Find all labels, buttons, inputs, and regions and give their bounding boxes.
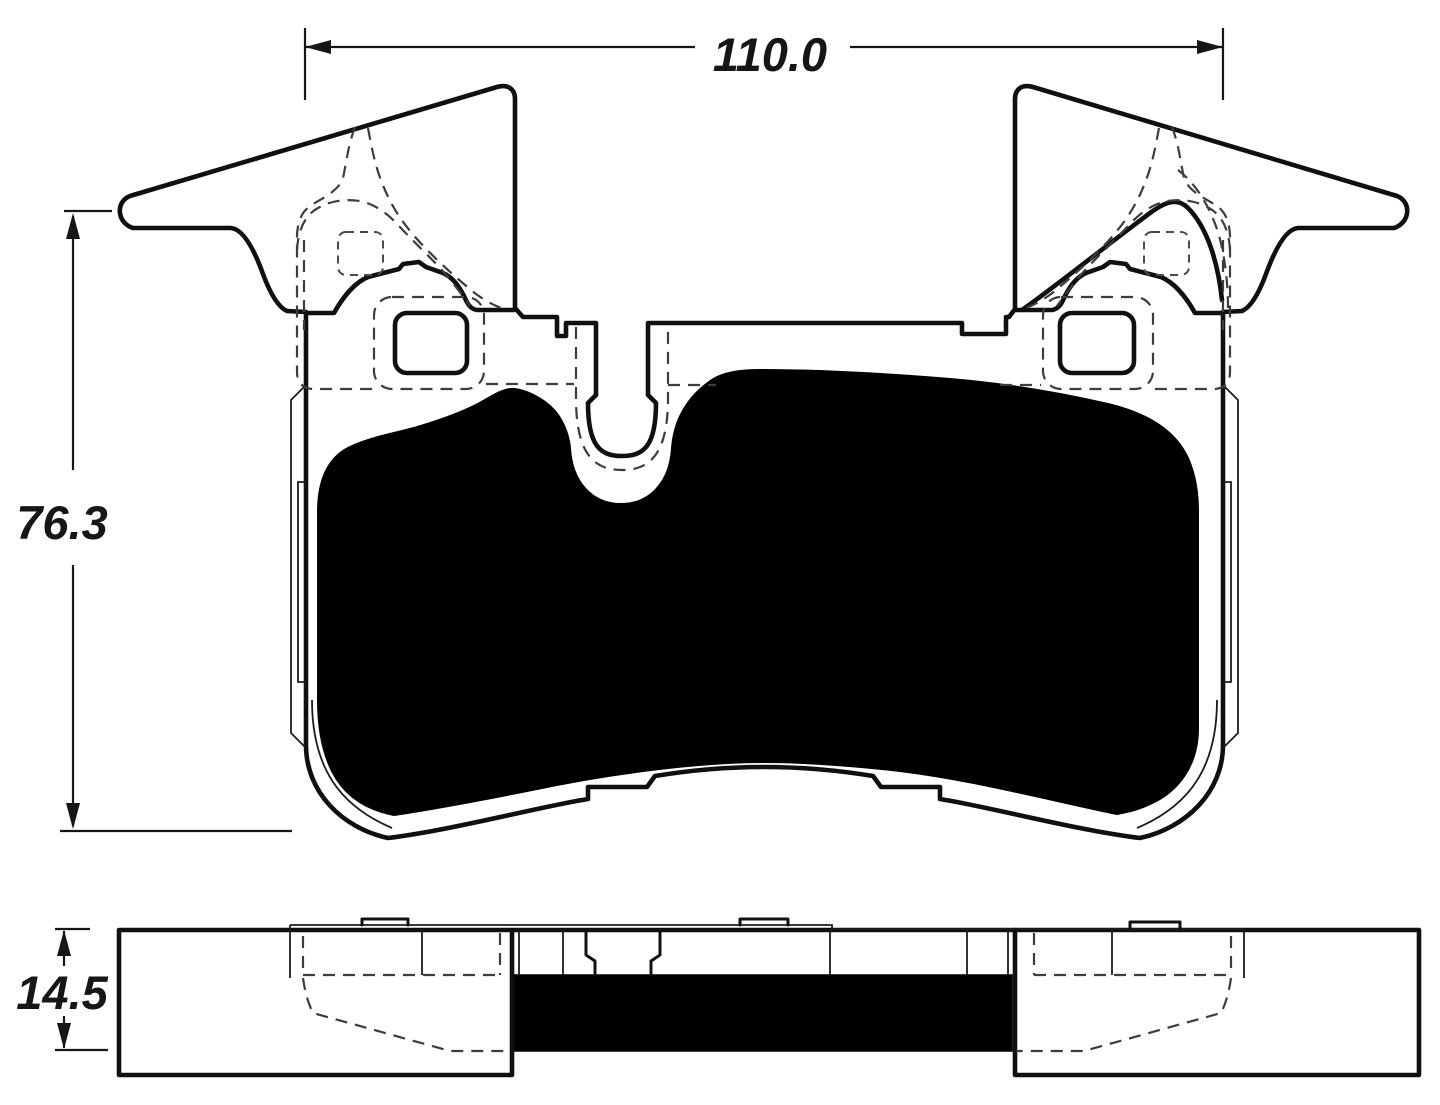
height-value: 76.3 [16,496,107,549]
dimension-width: 110.0 [305,28,1223,100]
side-view [119,919,1419,1075]
shim-strip [290,925,1244,978]
friction-material [318,370,1198,815]
arrow-up-icon [57,930,71,956]
plate-hump-right [1016,262,1223,313]
slot-edge-right [651,930,660,975]
hidden-clip-hole-left [338,232,383,275]
ear-block-left [119,930,512,1075]
ear-block-right [1015,930,1419,1075]
friction-band [512,975,1012,1051]
plate-hump-left [306,262,514,313]
dimension-thickness: 14.5 [16,929,108,1050]
brake-pad-drawing: 110.0 76.3 14.5 [0,0,1440,1105]
front-view [120,86,1407,838]
width-value: 110.0 [713,28,827,81]
thickness-value: 14.5 [16,966,108,1019]
hidden-clip-hole-right [1144,232,1189,275]
slot-edge-left [586,930,595,975]
technical-drawing-page: 110.0 76.3 14.5 [0,0,1440,1105]
dimension-height: 76.3 [16,211,292,831]
abutment-hole-left [395,313,467,373]
hidden-clip-side-right [1016,933,1231,1051]
hidden-clip-side-left [303,933,511,1051]
abutment-hole-right [1060,313,1134,373]
arrow-up-icon [66,213,80,239]
band-feature-lines [422,930,1112,975]
arrow-down-icon [57,1023,71,1049]
arrow-left-icon [305,40,331,54]
arrow-right-icon [1197,40,1223,54]
arrow-down-icon [66,803,80,829]
